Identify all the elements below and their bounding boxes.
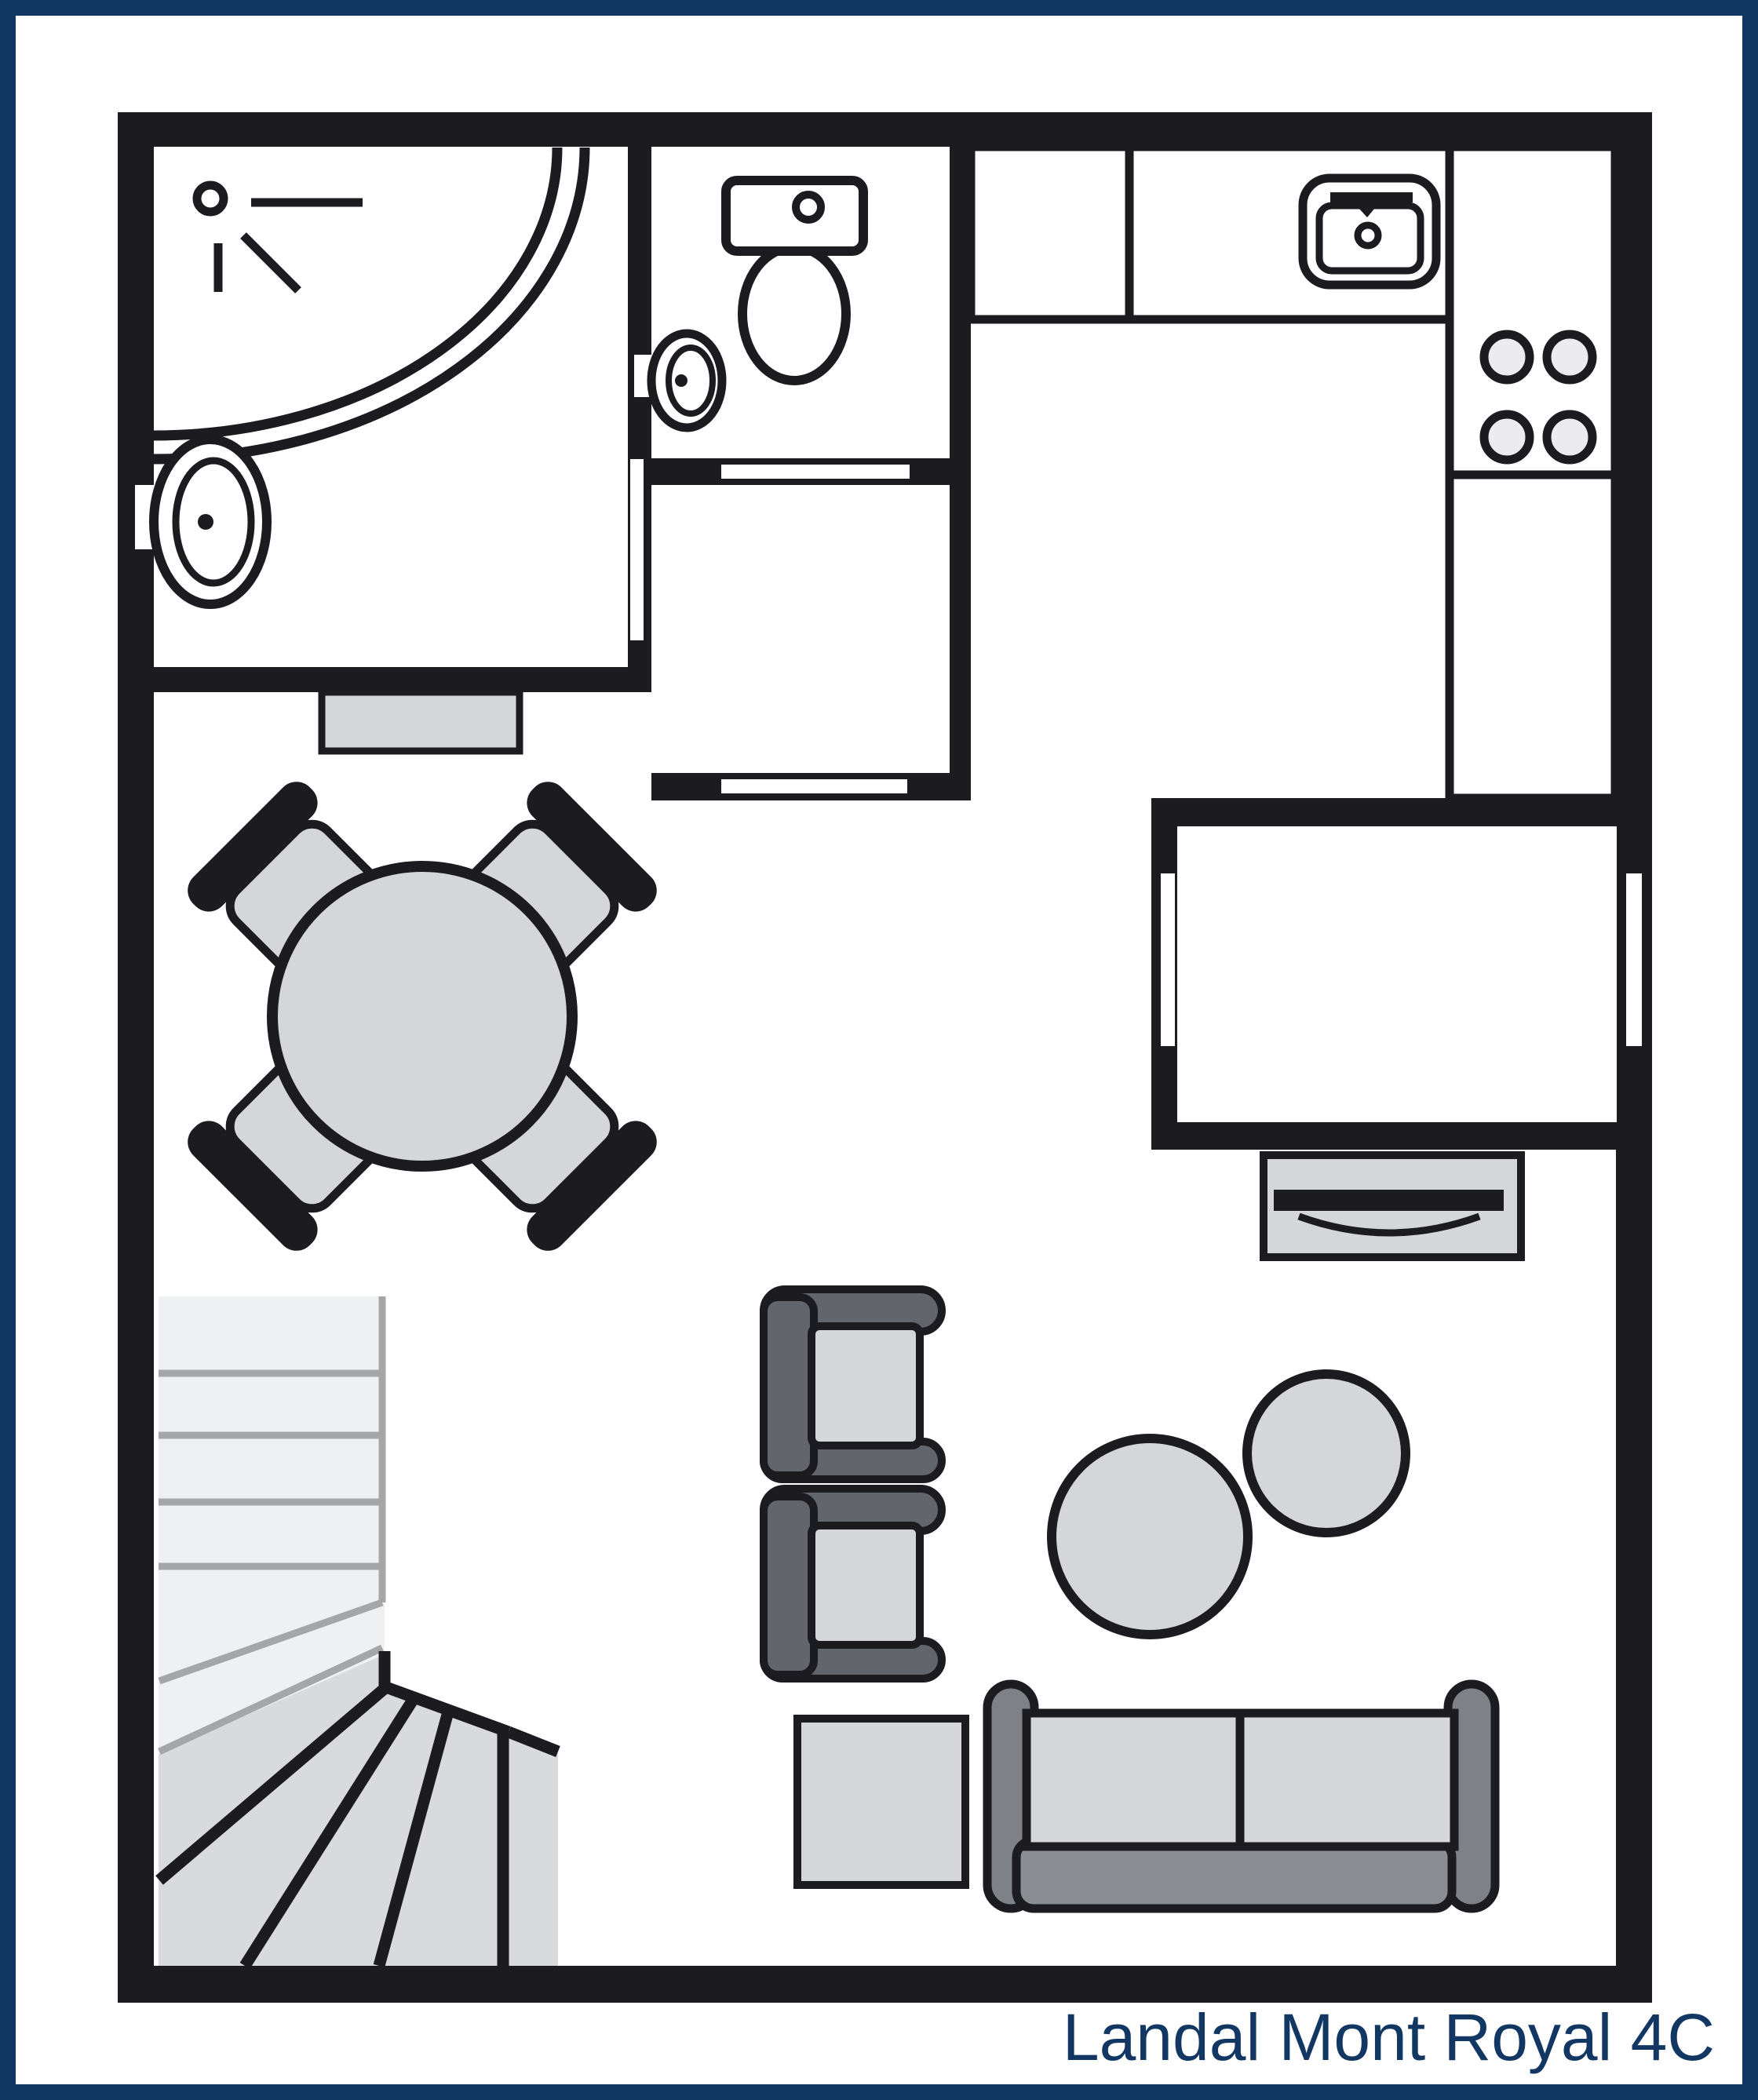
wall-top: [118, 112, 1652, 147]
armchair-2: [764, 1489, 942, 1679]
threshold-mat: [322, 692, 520, 751]
wc-washbasin-icon: [651, 334, 722, 428]
door-slot-storage: [721, 779, 907, 793]
door-slot-wc: [721, 465, 910, 479]
floorplan-drawing: Landal Mont Royal 4C: [0, 0, 1758, 2100]
plan-title: Landal Mont Royal 4C: [1063, 2000, 1715, 2074]
toilet-icon: [726, 180, 863, 381]
wall-bottom: [118, 1966, 1652, 2003]
pouf-large: [1052, 1438, 1248, 1635]
bathroom-washbasin-icon: [154, 439, 267, 604]
stairs-entry-step: [509, 1732, 558, 1966]
sofa: [987, 1684, 1495, 1909]
side-table: [797, 1719, 965, 1885]
window-alcove-left: [1161, 873, 1175, 1046]
sliding-door-slot-bathroom: [630, 459, 644, 640]
armchair-1: [764, 1289, 942, 1479]
wall-bathroom-bottom: [154, 667, 651, 692]
wall-alcove-bottom: [1151, 1122, 1652, 1150]
armchair-seat: [812, 1326, 920, 1446]
pouf-small: [1247, 1374, 1406, 1533]
wall-left: [118, 112, 154, 2003]
floorplan-page: Landal Mont Royal 4C: [0, 0, 1758, 2100]
kitchen-sink-icon: [1303, 178, 1436, 285]
armchair-seat: [812, 1526, 920, 1645]
tv-icon: [1274, 1190, 1504, 1211]
wall-right: [1616, 112, 1652, 2003]
sideboard-tv: [1264, 1155, 1521, 1257]
dining-table: [272, 866, 572, 1166]
window-right-wall: [1626, 873, 1642, 1046]
alcove-interior: [1177, 826, 1617, 1122]
